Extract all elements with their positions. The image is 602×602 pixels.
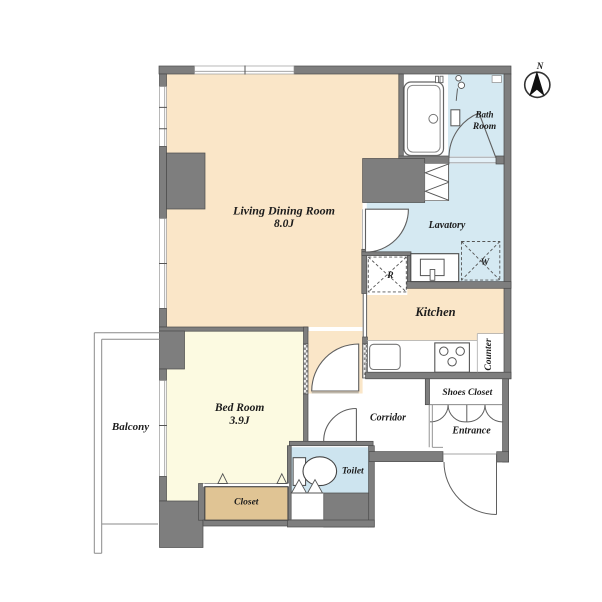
svg-text:Kitchen: Kitchen [414,305,455,319]
svg-text:Balcony: Balcony [111,421,149,433]
svg-text:N: N [536,61,544,71]
svg-text:3.9J: 3.9J [229,415,251,427]
svg-text:Shoes Closet: Shoes Closet [442,388,492,398]
svg-text:R: R [386,271,393,281]
svg-text:Toilet: Toilet [342,467,364,477]
svg-text:Bath: Bath [474,110,493,120]
svg-text:8.0J: 8.0J [274,218,295,230]
svg-text:Counter: Counter [484,338,494,371]
svg-text:Lavatory: Lavatory [428,220,466,231]
svg-text:Bed Room: Bed Room [214,402,265,414]
svg-text:Room: Room [472,122,496,132]
svg-text:Closet: Closet [234,498,259,508]
svg-text:W: W [481,258,490,268]
svg-text:Entrance: Entrance [451,426,491,437]
svg-text:Corridor: Corridor [370,413,406,424]
svg-text:Living Dining Room: Living Dining Room [232,204,335,218]
